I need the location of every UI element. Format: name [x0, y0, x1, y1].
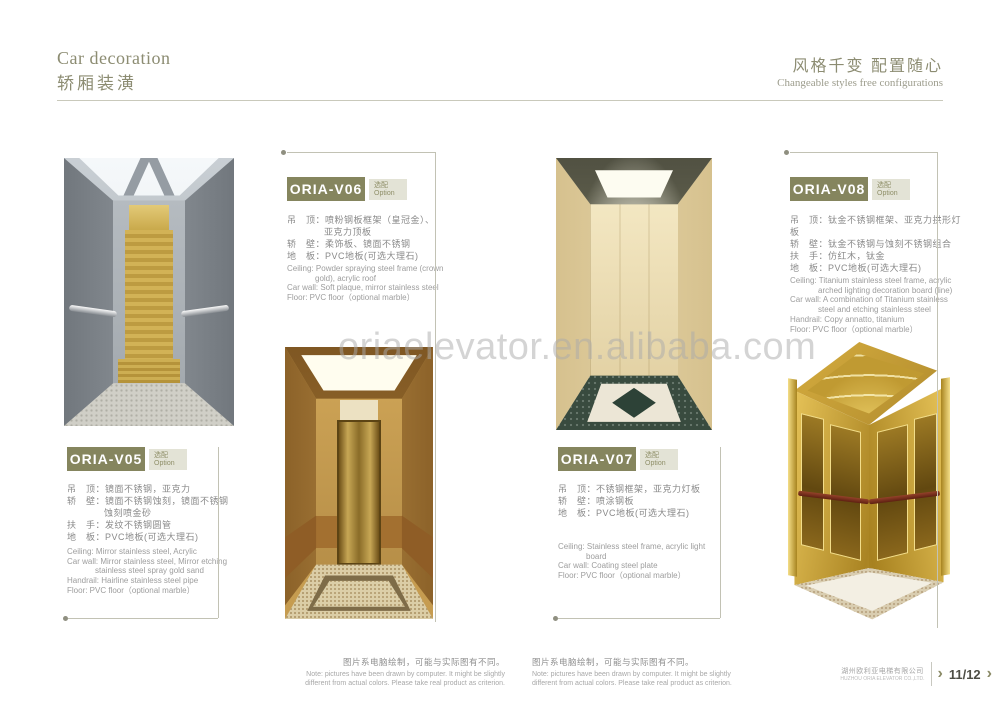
- spec-line: Handrail: Hairline stainless steel pipe: [67, 576, 252, 586]
- spec-line: 扶 手：仿红木，钛金: [790, 250, 965, 262]
- specs-en-v06: Ceiling: Powder spraying steel frame (cr…: [287, 264, 472, 303]
- option-label-en: Option: [877, 190, 910, 198]
- specs-zh-v08: 吊 顶：钛金不锈钢框架、亚克力拱形灯板 轿 壁：钛金不锈钢与蚀刻不锈钢组合 扶 …: [790, 214, 965, 274]
- note-en: different from actual colors. Please tak…: [532, 679, 774, 688]
- spec-line: 吊 顶：镜面不锈钢，亚克力: [67, 483, 242, 495]
- spec-line: 吊 顶：钛金不锈钢框架、亚克力拱形灯板: [790, 214, 965, 238]
- note-en: Note: pictures have been drawn by comput…: [263, 670, 505, 679]
- specs-en-v08: Ceiling: Titanium stainless steel frame,…: [790, 276, 975, 334]
- spec-line: 蚀刻喷金砂: [67, 507, 242, 519]
- option-badge-v05: 选配 Option: [149, 449, 187, 470]
- company-name-zh: 湖州欧利亚电梯有限公司: [840, 666, 924, 676]
- option-label-zh: 选配: [877, 182, 910, 190]
- option-label-en: Option: [154, 460, 187, 468]
- company-block: 湖州欧利亚电梯有限公司 HUZHOU ORIA ELEVATOR CO.,LTD…: [840, 666, 924, 682]
- spec-line: Car wall: Soft plaque, mirror stainless …: [287, 283, 472, 293]
- note-en: Note: pictures have been drawn by comput…: [532, 670, 774, 679]
- option-badge-v06: 选配 Option: [369, 179, 407, 200]
- page-title-zh: 轿厢装潢: [57, 69, 137, 94]
- chevron-right-icon: ›: [938, 666, 943, 682]
- spec-line: 地 板：PVC地板(可选大理石): [790, 262, 965, 274]
- decor-line: [218, 447, 219, 618]
- chevron-right-icon: ›: [987, 666, 992, 682]
- spec-line: Floor: PVC floor（optional marble）: [67, 586, 252, 596]
- spec-line: Ceiling: Mirror stainless steel, Acrylic: [67, 547, 252, 557]
- model-label-v08: ORIA-V08: [790, 177, 868, 201]
- decor-dot: [63, 616, 68, 621]
- spec-line: Ceiling: Powder spraying steel frame (cr…: [287, 264, 472, 274]
- decor-line: [435, 152, 436, 622]
- option-label-zh: 选配: [154, 452, 187, 460]
- spec-line: 轿 壁：钛金不锈钢与蚀刻不锈钢组合: [790, 238, 965, 250]
- spec-line: arched lighting decoration board (line): [790, 286, 975, 296]
- elevator-rendering-v07: [556, 158, 712, 430]
- decor-dot: [784, 150, 789, 155]
- company-name-en: HUZHOU ORIA ELEVATOR CO.,LTD.: [840, 676, 924, 682]
- gold-etched-panel: [125, 230, 173, 359]
- elevator-rendering-v05: [64, 158, 234, 426]
- option-label-zh: 选配: [645, 452, 678, 460]
- specs-zh-v05: 吊 顶：镜面不锈钢，亚克力 轿 壁：镜面不锈钢蚀刻，镜面不锈钢 蚀刻喷金砂 扶 …: [67, 483, 242, 543]
- spec-line: Floor: PVC floor（optional marble）: [558, 571, 743, 581]
- mirror-panel: [801, 414, 824, 551]
- note-en: different from actual colors. Please tak…: [263, 679, 505, 688]
- spec-line: Floor: PVC floor（optional marble）: [790, 325, 975, 335]
- spec-line: 地 板：PVC地板(可选大理石): [558, 507, 733, 519]
- decor-line: [720, 447, 721, 618]
- spec-line: Car wall: A combination of Titanium stai…: [790, 295, 975, 305]
- model-label-v05: ORIA-V05: [67, 447, 145, 471]
- gold-doors: [337, 420, 381, 564]
- specs-zh-v07: 吊 顶：不锈钢框架，亚克力灯板 轿 壁：喷涂钢板 地 板：PVC地板(可选大理石…: [558, 483, 733, 519]
- note-zh: 图片系电脑绘制，可能与实际图有不同。: [263, 656, 505, 668]
- page-footer: 湖州欧利亚电梯有限公司 HUZHOU ORIA ELEVATOR CO.,LTD…: [840, 662, 992, 686]
- option-label-en: Option: [645, 460, 678, 468]
- elevator-rendering-v08: [788, 342, 950, 628]
- note-zh: 图片系电脑绘制，可能与实际图有不同。: [532, 656, 774, 668]
- spec-line: steel and etching stainless steel: [790, 305, 975, 315]
- header-divider: [57, 100, 943, 101]
- tagline-en: Changeable styles free configurations: [777, 77, 943, 89]
- model-label-v07: ORIA-V07: [558, 447, 636, 471]
- decor-dot: [553, 616, 558, 621]
- specs-en-v07: Ceiling: Stainless steel frame, acrylic …: [558, 542, 743, 581]
- disclaimer-note: 图片系电脑绘制，可能与实际图有不同。 Note: pictures have b…: [263, 656, 505, 688]
- spec-line: 轿 壁：喷涂钢板: [558, 495, 733, 507]
- spec-line: 地 板：PVC地板(可选大理石): [67, 531, 242, 543]
- spec-line: stainless steel spray gold sand: [67, 566, 252, 576]
- option-badge-v07: 选配 Option: [640, 449, 678, 470]
- spec-line: board: [558, 552, 743, 562]
- disclaimer-note: 图片系电脑绘制，可能与实际图有不同。 Note: pictures have b…: [532, 656, 774, 688]
- decor-line: [937, 152, 938, 628]
- spec-line: Ceiling: Titanium stainless steel frame,…: [790, 276, 975, 286]
- corner-column-right: [941, 377, 950, 576]
- footer-divider: [931, 662, 932, 686]
- corner-column-left: [788, 378, 797, 577]
- mirror-panel: [830, 424, 861, 560]
- mirror-panel: [914, 414, 937, 551]
- watermark: oriaelevator.en.alibaba.com: [338, 326, 816, 369]
- page-title-en: Car decoration: [57, 48, 170, 69]
- catalog-page: Car decoration 轿厢装潢 风格千变 配置随心 Changeable…: [0, 0, 1000, 711]
- spec-line: 轿 壁：镜面不锈钢蚀刻，镜面不锈钢: [67, 495, 242, 507]
- spec-line: Car wall: Coating steel plate: [558, 561, 743, 571]
- spec-line: Ceiling: Stainless steel frame, acrylic …: [558, 542, 743, 552]
- specs-en-v05: Ceiling: Mirror stainless steel, Acrylic…: [67, 547, 252, 596]
- decor-line: [558, 618, 720, 619]
- mirror-panel: [877, 424, 908, 560]
- spec-line: Car wall: Mirror stainless steel, Mirror…: [67, 557, 252, 567]
- door-transom: [340, 400, 378, 422]
- spec-line: Floor: PVC floor（optional marble）: [287, 293, 472, 303]
- page-number: 11/12: [949, 667, 981, 682]
- decor-dot: [281, 150, 286, 155]
- option-label-zh: 选配: [374, 182, 407, 190]
- spec-line: 扶 手：发纹不锈钢圆管: [67, 519, 242, 531]
- model-label-v06: ORIA-V06: [287, 177, 365, 201]
- gold-panel-base: [118, 359, 181, 383]
- decor-line: [790, 152, 937, 153]
- tagline-zh: 风格千变 配置随心: [793, 52, 943, 76]
- option-label-en: Option: [374, 190, 407, 198]
- spec-line: gold), acrylic roof: [287, 274, 472, 284]
- option-badge-v08: 选配 Option: [872, 179, 910, 200]
- spec-line: Handrail: Copy annatto, titanium: [790, 315, 975, 325]
- spec-line: 吊 顶：不锈钢框架，亚克力灯板: [558, 483, 733, 495]
- decor-line: [287, 152, 435, 153]
- elevator-rendering-v06: [285, 347, 433, 619]
- gold-panel-top: [129, 205, 170, 230]
- decor-line: [68, 618, 218, 619]
